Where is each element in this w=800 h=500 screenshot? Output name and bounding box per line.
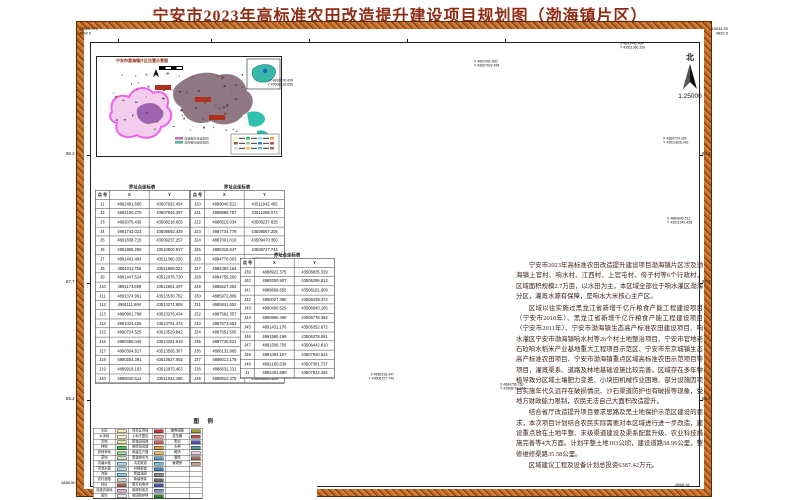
coord-row: J484891084.10743507920.524 — [241, 350, 334, 359]
inset-north-arrow-icon — [153, 69, 159, 77]
coordinate-table: 点 号XYJ394888922.37543506835.329J40488925… — [240, 258, 335, 378]
grid-tick-label: 90.2 — [702, 151, 722, 156]
coord-row: J184890254.39143513627.002 — [96, 356, 190, 365]
coord-row: J214888888.75743511068.073 — [191, 209, 284, 218]
description-paragraph: 结合省厅改造提升项目要求思路及黑土地保护示范区建设的要求，本次项目计划结合农民实… — [516, 408, 703, 460]
coordinate-callout: X 4884756.260Y 43508702.044 — [500, 383, 525, 391]
coordinate-callout: X 4892076.439Y 43508218.655 — [268, 79, 293, 87]
coordinate-callout: X 4889040.512Y 43511942.455 — [667, 217, 692, 225]
coordinate-table: 点 号XYJ14892491.60043507922.454J24892100.… — [95, 190, 190, 384]
legend-table: 水田项目区界线输电线路水浇地土地平整区变压器旱地新建田间道泵站林地维修田间道水闸… — [93, 428, 203, 499]
coord-row: J24892100.27043507946.287 — [96, 209, 190, 218]
coord-row: J444890890.48043506778.384 — [241, 314, 334, 323]
description-paragraph: 区域以往实施过黑龙江省新增千亿斤粮食产能工程建设项目（宁安市2010年）、黑龙江… — [516, 304, 703, 408]
coord-row: J244887001.01043509470.350 — [191, 236, 284, 245]
coord-row: J474891599.75643506442.810 — [241, 341, 334, 350]
grid-tick-label: 87.7 — [702, 279, 722, 284]
coord-row: J44891743.02343508592.429 — [96, 227, 190, 236]
grid-tick-label: 85.2 — [66, 396, 86, 401]
coord-row: J454891431.17643506352.672 — [241, 323, 334, 332]
coord-row: J74891441.40443511360.320 — [96, 255, 190, 264]
coordinate-callout: X 4885318.947Y 43508727.744 — [369, 373, 394, 381]
north-arrow-icon — [679, 63, 701, 93]
inset-legend: 改造提升建设范围渤海镇行政区范围 — [175, 136, 209, 144]
location-inset-map: 宁安市渤海镇片区位置示意图 改造提升建设范围渤海镇行政区范围 — [96, 56, 282, 157]
coordinate-callout: X 4889724.326Y 43510826.242 — [663, 137, 688, 145]
grid-tick-label: 90.2 — [66, 151, 86, 156]
coord-row: J494892160.63843507381.737 — [241, 360, 334, 369]
coord-row: J234887734.77843508567.205 — [191, 227, 284, 236]
corner-label-top-right: 43534.50 4892.5 — [700, 27, 728, 36]
grid-tick-label: 85.2 — [702, 396, 722, 401]
coord-row: J144891024.15543513791.474 — [96, 319, 190, 328]
coord-row: J14892491.68043507922.454 — [241, 369, 334, 378]
corner-label-bottom-left: 4868.50 — [61, 481, 75, 485]
compass: 北 1:25000 — [668, 52, 712, 100]
coord-row: J204889040.51243511942.455 — [191, 200, 284, 209]
coord-row: J414889899.65543506181.609 — [241, 286, 334, 295]
coord-row: J84891011.75643511859.021 — [96, 264, 190, 273]
plan-sheet: 宁安市2023年高标准农田改造提升建设项目规划图（渤海镇片区） — [0, 0, 800, 500]
coord-row: J464891580.19843506378.081 — [241, 332, 334, 341]
north-label: 北 — [668, 52, 712, 63]
grid-tick-label: 87.7 — [66, 279, 86, 284]
coord-row: J94891447.52443512076.720 — [96, 273, 190, 282]
coord-row: J154890724.52543513529.842 — [96, 328, 190, 337]
coord-row: J54891838.71543509237.257 — [96, 236, 190, 245]
coordinate-callout: X 4892491.600Y 43507922.454 — [474, 60, 499, 68]
coord-row: J64891866.25043510500.817 — [96, 246, 190, 255]
coord-row: J434890490.52943506840.165 — [241, 304, 334, 313]
corner-label-top-left: 43520.075 4892.5 — [79, 27, 98, 36]
coordinate-callout: X 4891441.404Y 43511360.320 — [620, 42, 645, 50]
description-paragraph: 宁安市2023年高标准农田改造提升建设项目渤海镇片区涉及渤海镇上官村、响水村、江… — [516, 261, 703, 303]
coord-row: J424890027.38043506439.372 — [241, 295, 334, 304]
coord-row: J224888519.03443508237.825 — [191, 218, 284, 227]
corner-label-bottom-right: 4868.15 — [675, 483, 689, 487]
coord-row: J104891173.69843512861.407 — [96, 282, 190, 291]
legend-row: 田坎农田防护林 — [94, 493, 203, 498]
coord-row: J164890455.04543513281.919 — [96, 337, 190, 346]
coord-row: J204889040.51243511942.455 — [96, 374, 190, 383]
coord-row: J124891111.69443513271.806 — [96, 301, 190, 310]
coord-row: J394888922.37543506835.329 — [241, 268, 334, 277]
coord-row: J194889918.16343512973.463 — [96, 365, 190, 374]
coord-row: J14892491.60043507922.454 — [96, 200, 190, 209]
inset-legend-item: 渤海镇行政区范围 — [175, 140, 209, 144]
legend-title: 图 例 — [138, 417, 272, 425]
coord-row: J114891074.96143513530.762 — [96, 292, 190, 301]
project-description: 宁安市2023年高标准农田改造提升建设项目渤海镇片区涉及渤海镇上官村、响水村、江… — [516, 261, 703, 473]
coord-row: J404889250.90743506295.612 — [241, 277, 334, 286]
coord-row: J134890901.76843513276.434 — [96, 310, 190, 319]
description-paragraph: 区域建议工程及设备计划总投资6387.42万元。 — [516, 461, 703, 471]
scale-text: 1:25000 — [668, 93, 712, 100]
coord-row: J34892076.43943508218.655 — [96, 218, 190, 227]
coord-row: J174890304.81743513565.387 — [96, 347, 190, 356]
legend: 图 例 水田项目区界线输电线路水浇地土地平整区变压器旱地新建田间道泵站林地维修田… — [93, 417, 317, 500]
